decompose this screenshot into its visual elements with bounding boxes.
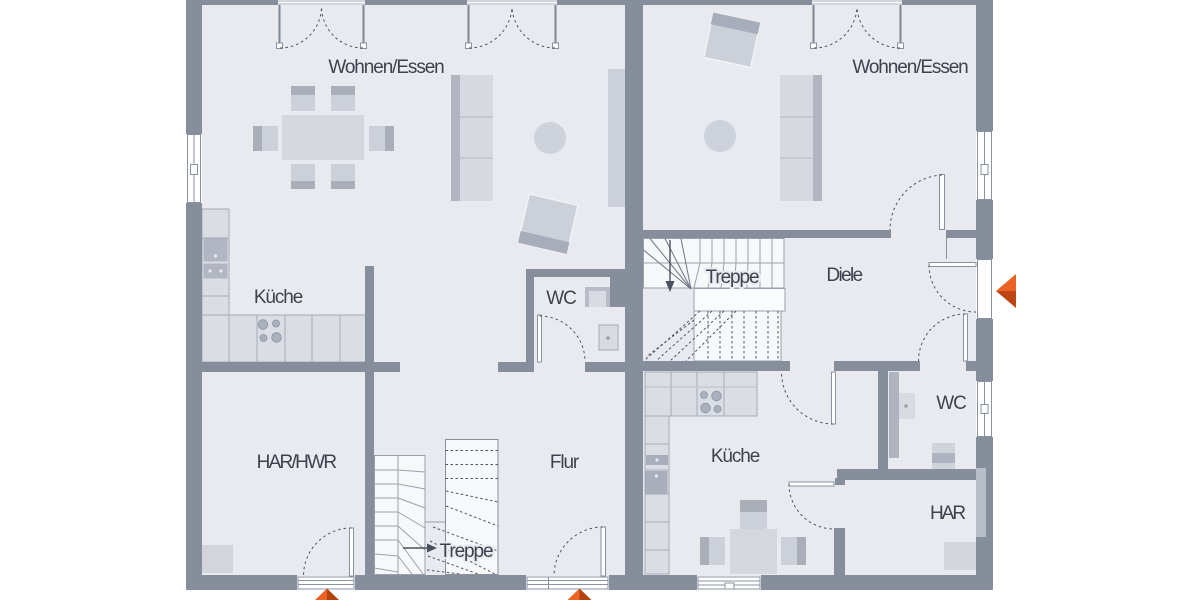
svg-text:Diele: Diele bbox=[826, 265, 862, 286]
svg-text:Küche: Küche bbox=[711, 446, 760, 467]
svg-text:Treppe: Treppe bbox=[706, 267, 759, 288]
svg-text:WC: WC bbox=[936, 393, 966, 414]
svg-text:Wohnen/Essen: Wohnen/Essen bbox=[852, 57, 968, 78]
svg-text:WC: WC bbox=[546, 288, 576, 309]
svg-text:Küche: Küche bbox=[254, 287, 303, 308]
svg-text:Flur: Flur bbox=[550, 452, 580, 473]
svg-text:Wohnen/Essen: Wohnen/Essen bbox=[328, 57, 444, 78]
svg-text:HAR: HAR bbox=[930, 503, 965, 524]
svg-text:HAR/HWR: HAR/HWR bbox=[257, 452, 337, 473]
svg-text:Treppe: Treppe bbox=[440, 541, 493, 562]
